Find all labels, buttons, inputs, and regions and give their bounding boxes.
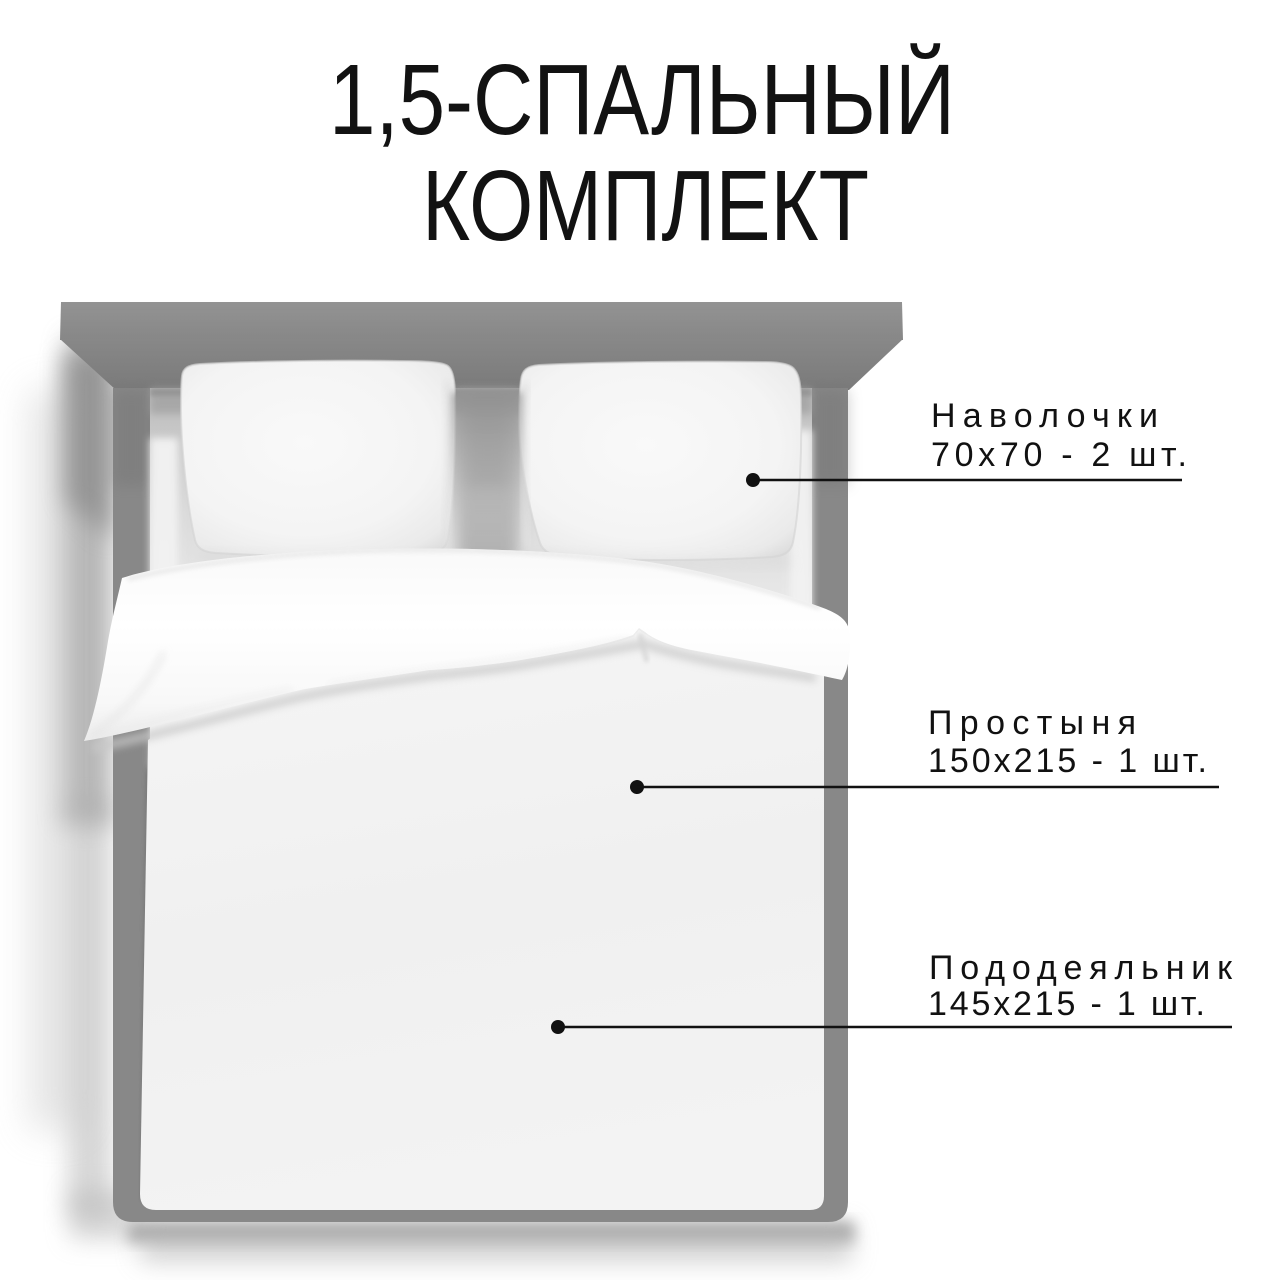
svg-text:КОМПЛЕКТ: КОМПЛЕКТ <box>422 150 869 262</box>
svg-text:Наволочки: Наволочки <box>931 397 1158 435</box>
svg-text:1,5-СПАЛЬНЫЙ: 1,5-СПАЛЬНЫЙ <box>329 43 955 156</box>
